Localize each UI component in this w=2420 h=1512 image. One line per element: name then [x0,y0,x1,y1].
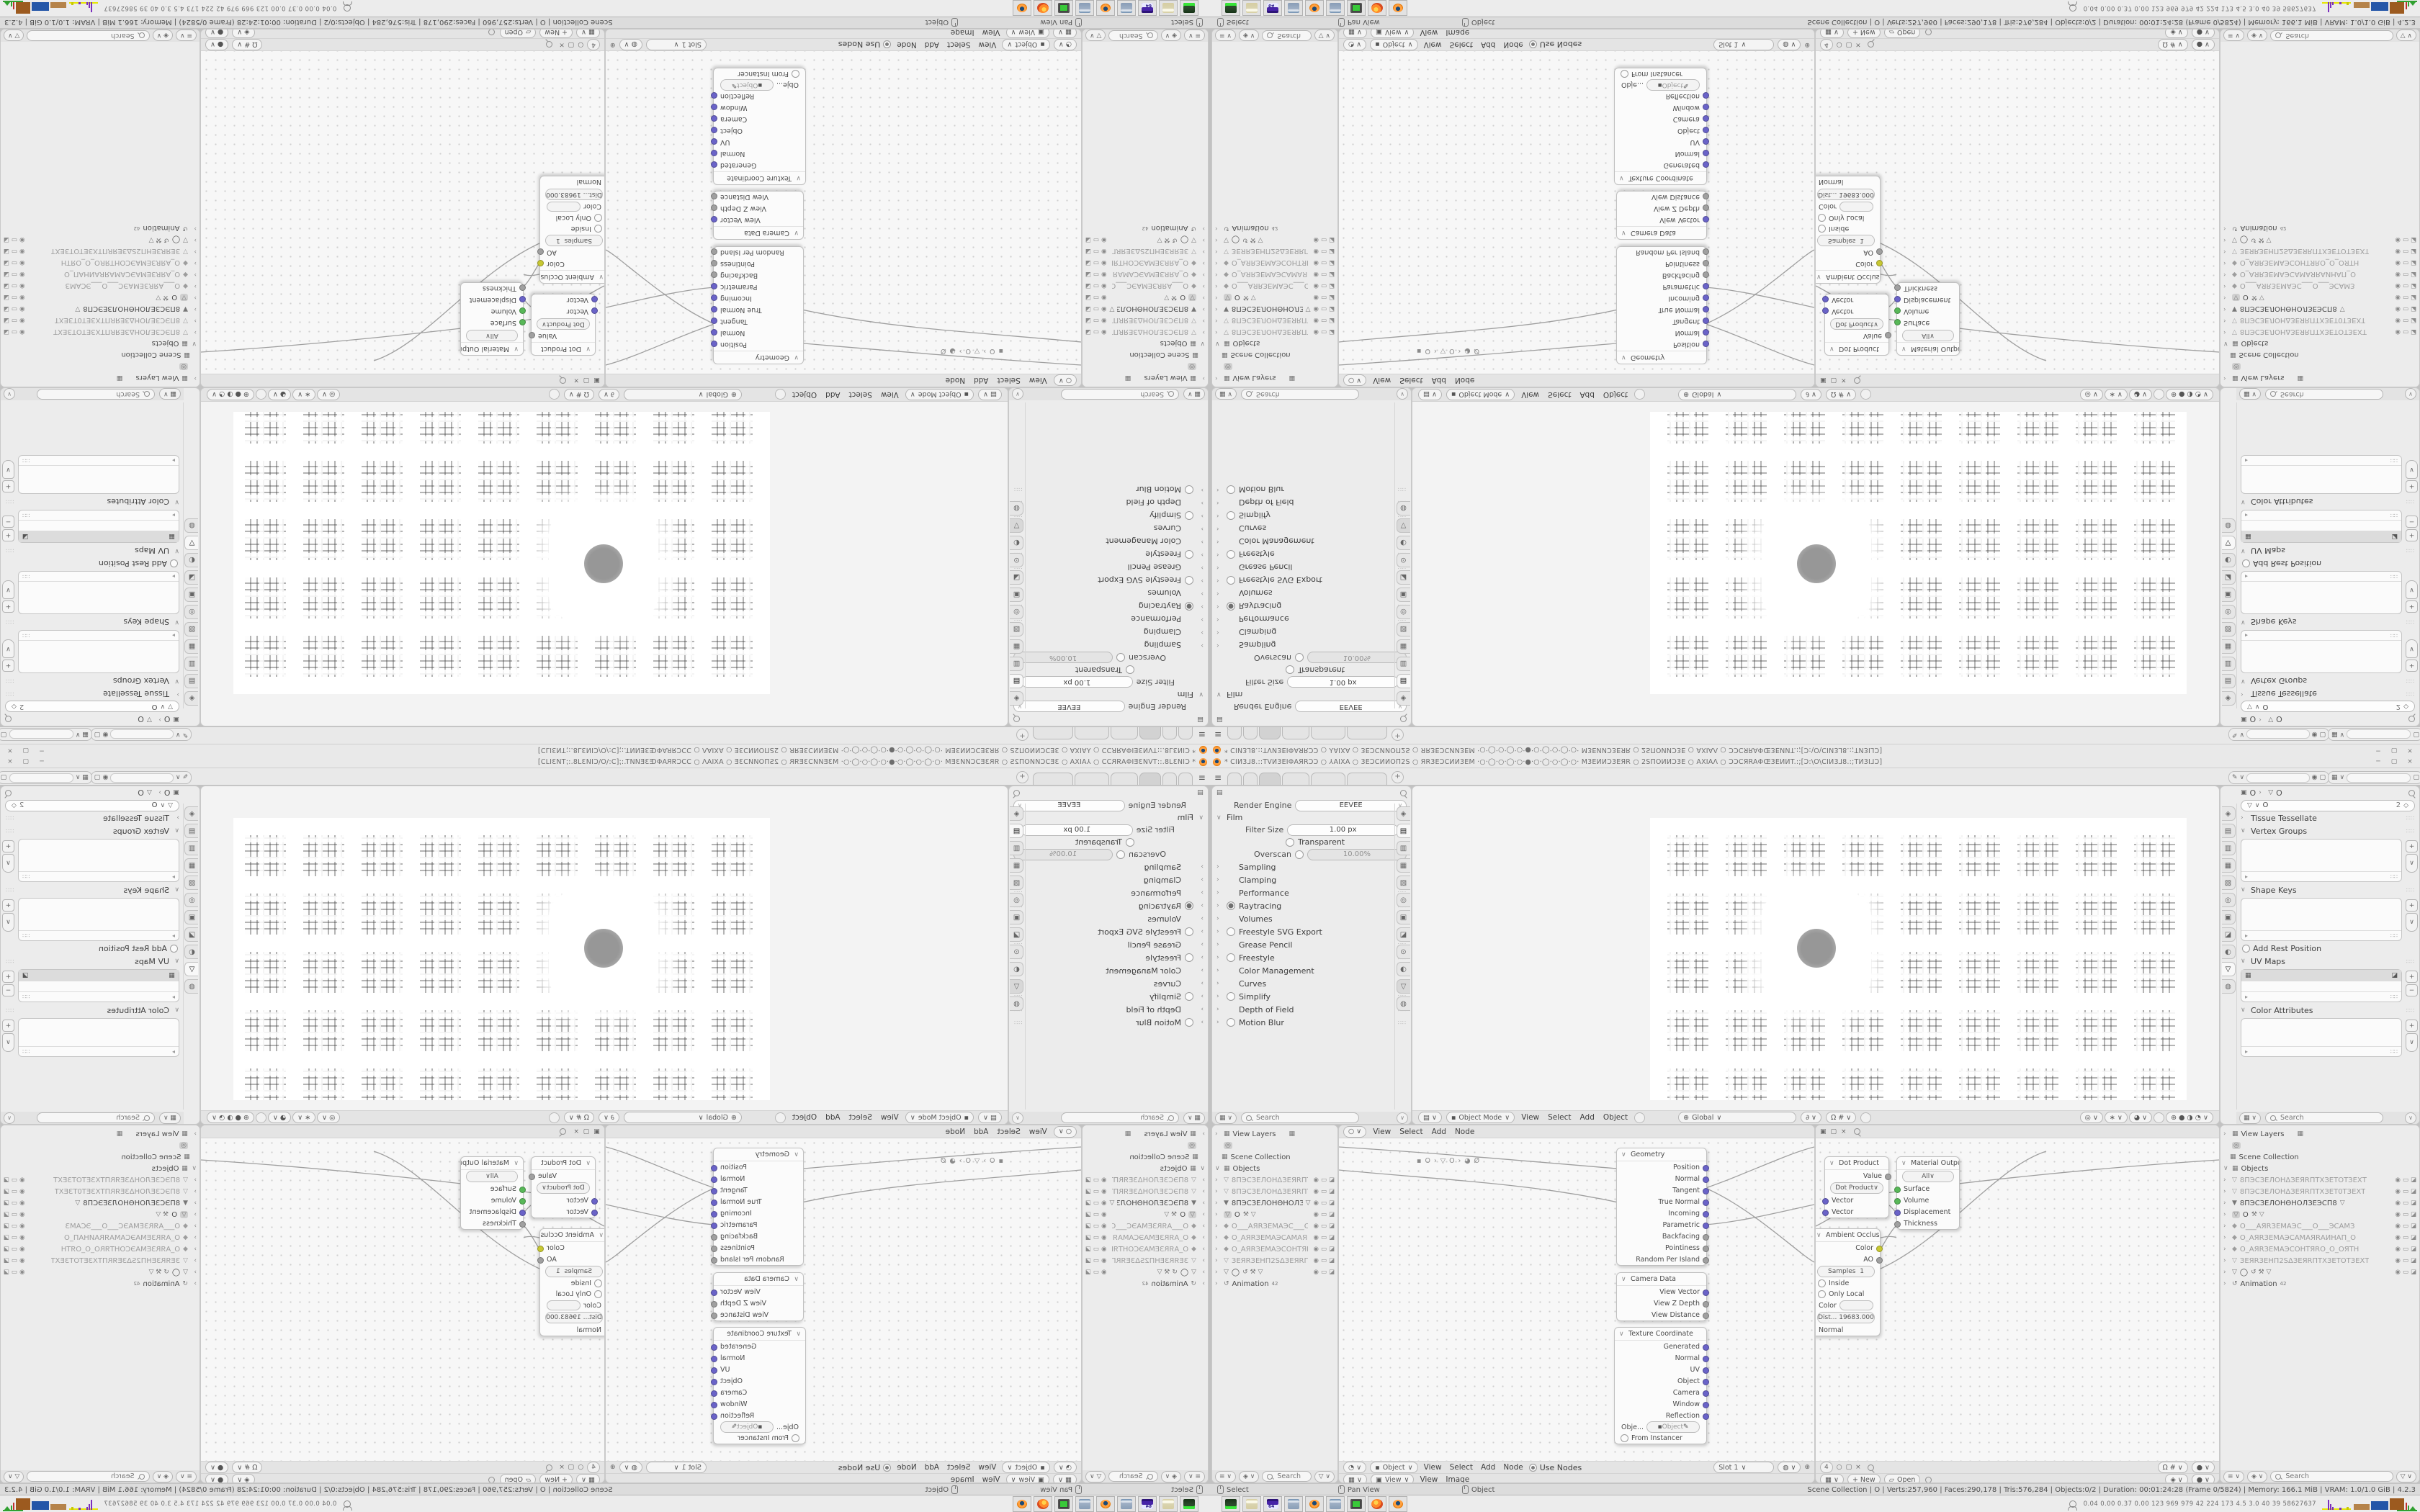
outliner-objects-row[interactable]: ∨▦ Objects [2220,1163,2419,1174]
shader-menu-node[interactable]: Node [1501,1463,1525,1472]
disable-render-icon[interactable]: ◪ [2411,1246,2416,1253]
outliner-filter-dropdown[interactable]: ▽ ∨ [1085,1471,1106,1482]
disable-render-icon[interactable]: ◪ [2411,248,2416,255]
taskbar-app-icon[interactable] [1034,0,1052,16]
pivot-point-button[interactable]: ∂ ∨ [1801,389,1821,400]
node-output-socket[interactable]: Window [1615,1398,1706,1410]
frame-counter[interactable]: 4 [587,1462,600,1473]
pin-icon[interactable] [1854,377,1860,384]
menu-hamburger-icon[interactable]: ≡ [1198,773,1206,783]
transparent-checkbox[interactable] [1126,838,1134,847]
tool-settings-button[interactable]: ◈ ∨ [232,29,254,38]
render-section-row[interactable]: › Freestyle ∷∷ [1212,951,1411,964]
workspace-tab-2[interactable] [1243,773,1258,785]
vertex-groups-panel[interactable]: ∨Vertex Groups∷∷ [1,824,184,837]
overscan-input[interactable]: 10.00% [1307,652,1407,664]
pin-icon[interactable] [488,30,495,36]
properties-search[interactable] [1061,1112,1179,1123]
node-output-socket[interactable]: Color [540,258,604,270]
disable-viewport-icon[interactable]: ▭ [2403,259,2408,266]
node-output-socket[interactable]: View Distance [1617,1309,1706,1320]
add-vertex-group-button[interactable]: + [2406,660,2418,672]
image-view-mode-select[interactable]: ▣ View ∨ [1371,1474,1415,1483]
disable-viewport-icon[interactable]: ▭ [2403,1234,2408,1241]
duplicate-icon[interactable]: ▢ [583,377,590,384]
vector-math-operation-select[interactable]: Dot Product∨ [1830,318,1883,330]
minimize-button[interactable]: ─ [37,747,46,754]
node-output-socket[interactable]: Tangent [714,1184,803,1196]
add-workspace-button[interactable]: + [1391,729,1404,741]
outliner-object-row[interactable]: › ◆ O_АЯRЗЕМАЭСОНТЯRО_О_ОЯТН ◉ ▭ ◪ [1212,1243,1337,1255]
hide-eye-icon[interactable]: ◉ [19,1211,24,1218]
node-geometry[interactable]: ∨Geometry Position Normal [713,1148,804,1266]
node-output-socket[interactable]: AO [540,1254,604,1265]
node-output-socket[interactable]: Parametric [714,1219,803,1230]
disable-render-icon[interactable]: ◪ [4,1257,9,1264]
hide-eye-icon[interactable]: ◉ [2396,282,2401,289]
disable-viewport-icon[interactable]: ▭ [1093,317,1099,324]
disable-render-icon[interactable]: ◪ [4,271,9,278]
hide-eye-icon[interactable]: ◉ [2396,305,2401,312]
properties-tab-data-icon[interactable]: ▽ [2222,536,2236,550]
node-output-socket[interactable]: Normal [714,148,805,160]
editor-type-button[interactable]: ▤ ∨ [1418,389,1442,400]
hide-eye-icon[interactable]: ◉ [1101,1234,1106,1241]
circle-icon[interactable]: ○ [578,41,583,48]
properties-tab-output-icon[interactable]: ▥ [185,841,199,855]
outliner-scene-collection-row[interactable]: ▦ Scene Collection [1212,349,1337,361]
disable-viewport-icon[interactable]: ▭ [2403,1223,2408,1230]
section-toggle[interactable] [1227,485,1235,494]
menu-hamburger-icon[interactable]: ≡ [1214,729,1222,739]
outliner-filter-dropdown[interactable]: ▽ ∨ [2396,30,2416,42]
outliner-object-row[interactable]: › ▽ O ⚒ ▽ ◉ ▭ ◪ [1083,292,1208,303]
node-output-socket[interactable]: Object [1615,1375,1706,1387]
node-input-socket[interactable]: Volume [461,306,523,318]
mode-options-button[interactable] [775,390,786,400]
taskbar-app-icon[interactable] [1096,1496,1115,1512]
disable-render-icon[interactable]: ◪ [1329,1176,1335,1184]
options-button[interactable]: ∨ [1012,1112,1023,1124]
options-button[interactable]: ∨ [1012,389,1023,400]
disable-viewport-icon[interactable]: ▭ [12,317,17,324]
vertex-group-specials-button[interactable]: ∨ [2,854,14,873]
fake-user-shield-icon[interactable]: ◇ [2403,703,2408,711]
disable-render-icon[interactable]: ◪ [1329,1234,1335,1241]
pin-icon[interactable] [1400,790,1407,796]
outliner-view-layers-row[interactable]: ›▦ View Layers ▦ [1,1128,200,1140]
properties-tab-scene-icon[interactable]: ▧ [1010,622,1024,636]
node-output-socket[interactable]: True Normal [1617,1196,1706,1207]
hide-eye-icon[interactable]: ◉ [1101,1269,1106,1276]
shape-key-specials-button[interactable]: ∨ [2,580,14,599]
pin-scene-icon[interactable]: ◉ [2312,774,2318,781]
material-browse-button[interactable]: ◍ ∨ [619,1462,642,1473]
node-output-socket[interactable]: True Normal [1617,305,1706,316]
render-section-row[interactable]: › Grease Pencil ∷∷ [1009,938,1208,951]
search-input[interactable] [1066,390,1165,399]
node-material-output[interactable]: ∨Material Output All∨ Surface Volume [460,282,524,356]
color-attributes-panel[interactable]: ∨Color Attributes∷∷ [1,1004,184,1017]
outliner-badge-row[interactable]: ◎ [1212,1140,1337,1151]
render-section-row[interactable]: › Sampling ∷∷ [1009,639,1208,652]
outliner-filter-button[interactable]: ◈ ∨ [1161,1471,1181,1482]
node-input-socket[interactable]: Normal [540,1324,604,1336]
render-section-row[interactable]: › Depth of Field ∷∷ [1009,1003,1208,1016]
disable-render-icon[interactable]: ◪ [2411,1176,2416,1184]
inside-checkbox[interactable] [594,225,602,233]
node-output-socket[interactable]: Color [540,1242,604,1254]
disable-viewport-icon[interactable]: ▭ [1093,294,1099,301]
node-input-socket[interactable]: Surface [461,1183,523,1194]
shader-menu-node[interactable]: Node [895,1463,918,1472]
outliner-object-row[interactable]: › ▼ 8ПЭСЗЕЛОНΘНОЛЗЕЭСП8 ▽ ◉ ▭ ◪ [2220,303,2419,315]
add-rest-position-checkbox[interactable] [2242,945,2250,953]
uv-maps-listbox[interactable]: ▦◪ ▸∷∷ [2241,969,2402,1002]
node-output-socket[interactable]: Random Per Island [1617,247,1706,258]
xray-toggle[interactable] [2154,1112,2164,1123]
properties-tab-material-icon[interactable]: ◍ [2222,979,2236,994]
outliner-object-row[interactable]: › ◆ O_АЯRЗЕМАЭСОНТЯRО_О_ОЯТН ◉ ▭ ◪ [2220,1243,2419,1255]
image-view-mode-select[interactable]: ▣ View ∨ [1006,1474,1050,1483]
mode-select[interactable]: ▪ Object Mode ∨ [1446,1112,1515,1123]
workspace-tab-1[interactable] [1178,773,1193,785]
editor-type-button[interactable]: ▦ ∨ [1053,29,1077,38]
transparent-checkbox[interactable] [1286,666,1294,675]
outliner-objects-row[interactable]: ∨▦ Objects [1,338,200,349]
render-engine-select[interactable]: EEVEE∨ [1013,701,1125,713]
outliner-object-row[interactable]: › ▽ 8ПЭСЗЕЛОНΔЗЕЯRПТХЗЕТОТЗЕХТ ◉ ▭ ◪ [1083,326,1208,338]
disable-render-icon[interactable]: ◪ [1085,1176,1091,1184]
properties-tab-data-icon[interactable]: ▽ [1010,979,1024,994]
uv-map-item-active[interactable]: ▦◪ [2241,970,2401,981]
node-output-socket[interactable]: Object [714,125,805,137]
tissue-tessellate-panel[interactable]: ›Tissue Tessellate∷∷ [2236,811,2419,824]
scene-selector[interactable]: ✎∨ ◉ ▢ [91,771,192,784]
add-uv-map-button[interactable]: + [2406,529,2418,541]
node-output-socket[interactable]: UV [714,1364,805,1375]
properties-tab-modifiers-icon[interactable]: ◪ [185,570,199,585]
properties-tab-object-icon[interactable]: ▣ [1397,588,1410,602]
circle-icon[interactable]: ○ [1837,1464,1842,1471]
outliner-animation-row[interactable]: ›↺ Animation 42 [2220,1278,2419,1290]
add-color-attribute-button[interactable]: + [2,1020,14,1032]
image-menu-image[interactable]: Image [949,1475,977,1483]
shader-menu-add[interactable]: Add [1430,1128,1448,1136]
disable-viewport-icon[interactable]: ▭ [12,1188,17,1195]
only-local-checkbox[interactable] [1818,214,1826,222]
properties-tab-world-icon[interactable]: ◎ [185,893,199,907]
outliner-object-row[interactable]: › ▽ 8ПЭСЗЕЛОНΔЗЕЯRПТХЗЕТ0ТЗЕХТ ◉ ▭ ◪ [2220,1186,2419,1197]
inside-checkbox[interactable] [1818,225,1826,233]
disable-viewport-icon[interactable]: ▭ [12,271,17,278]
node-input-socket[interactable]: Thickness [1897,283,1959,294]
node-input-socket[interactable]: Normal [1816,1324,1880,1336]
outliner-object-row[interactable]: › ◆ O_АЯRЗЕМАЭСАМАЯRАИНАП_О ◉ ▭ ◪ [2220,1232,2419,1243]
outliner-object-row[interactable]: › ◆ O_АЯRЗЕМАЭСОНТЯRО_О_ОЯТН ◉ ▭ ◪ [1,257,200,269]
unlink-icon[interactable]: × [573,1128,579,1135]
hide-eye-icon[interactable]: ◉ [2396,1200,2401,1207]
viewport-menu-view[interactable]: View [1519,1113,1541,1122]
outliner-object-row[interactable]: › ▽ 8ПЭСЗЕЛОНΔЗЕЯRПТХЗЕТОТЗЕХТ ◉ ▭ ◪ [2220,1174,2419,1186]
disable-viewport-icon[interactable]: ▭ [1321,1200,1327,1207]
node-output-socket[interactable]: View Vector [1617,215,1706,226]
shader-menu-select[interactable]: Select [1448,1463,1475,1472]
outliner-object-row[interactable]: › ◆ O_АЯRЗЕМАЭСОНТЯRО_О_ОЯТН ◉ ▭ ◪ [1083,1243,1208,1255]
node-output-socket[interactable]: Value [532,1170,595,1182]
render-section-row[interactable]: › Grease Pencil ∷∷ [1212,561,1411,574]
node-output-socket[interactable]: Value [1825,1170,1888,1182]
tissue-tessellate-panel[interactable]: ›Tissue Tessellate∷∷ [1,811,184,824]
node-output-socket[interactable]: Generated [1615,160,1706,171]
hide-eye-icon[interactable]: ◉ [1314,271,1319,278]
hide-eye-icon[interactable]: ◉ [1314,1200,1319,1207]
properties-tab-render-icon[interactable]: ▤ [1397,824,1410,838]
xray-toggle[interactable] [256,390,266,400]
taskbar-app-icon[interactable] [1075,1496,1094,1512]
shader-menu-select[interactable]: Select [1397,1128,1425,1136]
disable-render-icon[interactable]: ◪ [1329,282,1335,289]
color-attributes-panel[interactable]: ∨Color Attributes∷∷ [2236,495,2419,508]
close-button[interactable]: × [2406,758,2414,765]
viewport-3d[interactable]: ▤ ∨ ▪ Object Mode ∨ View Select Add Obje… [1412,387,2220,726]
disable-render-icon[interactable]: ◪ [1329,259,1335,266]
disable-viewport-icon[interactable]: ▭ [1321,294,1327,301]
workspace-tab-4[interactable] [1111,773,1138,785]
uv-map-item-active[interactable]: ▦◪ [19,970,179,981]
hide-eye-icon[interactable]: ◉ [1314,236,1319,243]
add-uv-map-button[interactable]: + [2,971,14,983]
outliner-object-row[interactable]: › ▽ 8ПЭСЗЕЛОНΔЗЕЯRПТХЗЕТОТЗЕХТ ◉ ▭ ◪ [2220,326,2419,338]
disable-viewport-icon[interactable]: ▭ [12,1223,17,1230]
mesh-name-field[interactable]: ▽∨ O 2 ◇ [2241,800,2415,811]
disable-viewport-icon[interactable]: ▭ [1093,1234,1099,1241]
render-section-row[interactable]: › Raytracing ∷∷ [1009,899,1208,912]
disable-viewport-icon[interactable]: ▭ [2403,1246,2408,1253]
image-menu-image[interactable]: Image [1443,1475,1471,1483]
overscan-checkbox[interactable] [1116,654,1125,662]
render-section-row[interactable]: › Curves ∷∷ [1009,977,1208,990]
disable-viewport-icon[interactable]: ▭ [1321,317,1327,324]
section-toggle[interactable] [1227,992,1235,1001]
search-input[interactable] [42,390,141,399]
disable-render-icon[interactable]: ◪ [1329,1269,1335,1276]
vertex-groups-panel[interactable]: ∨Vertex Groups∷∷ [2236,824,2419,837]
disable-render-icon[interactable]: ◪ [4,317,9,324]
disable-render-icon[interactable]: ◪ [2411,271,2416,278]
disable-viewport-icon[interactable]: ▭ [12,259,17,266]
image-menu-image[interactable]: Image [949,29,977,37]
node-output-socket[interactable]: AO [1816,1254,1880,1265]
pin-icon[interactable] [2408,716,2415,723]
disable-render-icon[interactable]: ◪ [2411,328,2416,336]
hide-eye-icon[interactable]: ◉ [1101,1211,1106,1218]
outliner-animation-row[interactable]: ›↺ Animation 42 [1083,222,1208,234]
disable-render-icon[interactable]: ◪ [2411,1269,2416,1276]
search-input[interactable] [2284,31,2388,40]
properties-tab-object-icon[interactable]: ▣ [2222,910,2236,924]
from-instancer-checkbox[interactable] [792,70,799,78]
node-texture-coordinate[interactable]: ∨Texture Coordinate Generated Normal [713,68,806,185]
hide-eye-icon[interactable]: ◉ [19,294,24,301]
properties-tab-modifiers-icon[interactable]: ◪ [1010,927,1024,942]
editor-type-button[interactable]: ○ ∨ [1054,1126,1077,1138]
mesh-name-field[interactable]: ▽∨ O 2 ◇ [5,701,179,713]
hide-eye-icon[interactable]: ◉ [19,259,24,266]
taskbar-app-icon[interactable] [1389,1496,1407,1512]
material-slot-select[interactable]: Slot 1 ∨ [1713,39,1774,50]
render-engine-select[interactable]: EEVEE∨ [1295,800,1407,811]
properties-tab-output-icon[interactable]: ▥ [185,657,199,671]
properties-tab-output-icon[interactable]: ▥ [1010,841,1024,855]
node-dot-product[interactable]: ∨Dot Product Value Dot Product∨ Vector [531,294,596,356]
node-camera-data[interactable]: ∨Camera Data View Vector View Z Depth [1616,1272,1707,1321]
node-material-output[interactable]: ∨Material Output All∨ Surface Volume [1896,282,1960,356]
overlays-button[interactable]: ● ∨ [2192,29,2215,38]
outliner-objects-row[interactable]: ∨▦ Objects [2220,338,2419,349]
pin-icon[interactable] [5,790,12,796]
vector-math-operation-select[interactable]: Dot Product∨ [537,318,590,330]
disable-viewport-icon[interactable]: ▭ [2403,236,2408,243]
shader-menu-select[interactable]: Select [1397,377,1425,385]
editor-type-button[interactable]: ○ ∨ [1343,1126,1366,1138]
viewport-menu-view[interactable]: View [879,1113,901,1122]
close-button[interactable]: × [6,747,14,754]
proportional-edit-button[interactable] [1860,390,1871,400]
overlays-button[interactable]: ● ∨ [205,1474,228,1483]
taskbar-app-icon[interactable] [1180,1496,1198,1512]
properties-tab-object-icon[interactable]: ▣ [1397,910,1410,924]
ao-distance-input[interactable]: Dist... 19683.000 [545,1312,603,1323]
disable-viewport-icon[interactable]: ▭ [1093,236,1099,243]
disable-render-icon[interactable]: ◪ [2411,236,2416,243]
proportional-edit-button[interactable] [549,390,560,400]
editor-type-button[interactable]: ▦ ∨ [1820,29,1844,38]
taskbar-app-icon[interactable] [1368,0,1386,16]
disable-viewport-icon[interactable]: ▭ [2403,328,2408,336]
editor-type-button[interactable]: ◔ ∨ [1343,39,1366,50]
unlink-icon[interactable]: × [1855,41,1861,48]
render-section-row[interactable]: › Freestyle SVG Export ∷∷ [1009,925,1208,938]
render-props-type-icon[interactable]: ▤ [1197,789,1204,796]
node-output-socket[interactable]: UV [714,137,805,148]
hide-eye-icon[interactable]: ◉ [1314,1176,1319,1184]
disable-render-icon[interactable]: ◪ [1085,236,1091,243]
taskbar-app-icon[interactable] [1284,1496,1303,1512]
use-nodes-row[interactable]: Use Nodes [1529,40,1582,50]
close-button[interactable]: × [2406,747,2414,754]
unlink-icon[interactable]: × [559,41,565,48]
disable-viewport-icon[interactable]: ▭ [1321,328,1327,336]
properties-tab-tool-icon[interactable]: ◈ [2222,806,2236,821]
color-attributes-listbox[interactable]: ▸∷∷ [18,1018,179,1057]
outliner-filter-button[interactable]: ◈ ∨ [153,1471,173,1482]
ao-distance-input[interactable]: Dist... 19683.000 [1817,1312,1875,1323]
node-input-socket[interactable]: Surface [1897,1183,1959,1194]
disable-render-icon[interactable]: ◪ [1085,1234,1091,1241]
ao-distance-input[interactable]: Dist... 19683.000 [545,189,603,200]
workspace-tab-5[interactable] [1311,727,1345,739]
editor-type-button[interactable]: ◔ ∨ [1054,39,1077,50]
breadcrumb-data[interactable]: O [138,715,144,724]
copy-viewlayer-icon[interactable]: ▢ [2413,731,2419,738]
render-section-row[interactable]: › Clamping ∷∷ [1009,873,1208,886]
frame-counter[interactable]: 4 [587,39,600,50]
node-output-socket[interactable]: Camera [1615,1387,1706,1398]
render-section-row[interactable]: › Volumes ∷∷ [1212,912,1411,925]
node-ambient-occlusion[interactable]: ∨Ambient Occlusion Color AO Samples 1 In… [1816,176,1881,284]
section-toggle[interactable] [1185,953,1193,962]
hide-eye-icon[interactable]: ◉ [1314,259,1319,266]
copy-viewlayer-icon[interactable]: ▢ [1,774,7,781]
properties-tab-scene-icon[interactable]: ▧ [2222,622,2236,636]
node-input-socket[interactable]: Normal [1816,176,1880,188]
render-section-row[interactable]: › Performance ∷∷ [1009,613,1208,626]
xray-toggle[interactable] [2154,390,2164,400]
outliner-badge-row[interactable]: ◎ [1212,361,1337,372]
node-input-socket[interactable]: Surface [1897,318,1959,329]
image-menu-view[interactable]: View [980,29,1003,37]
editor-type-button[interactable]: ◔ ∨ [1054,1462,1077,1473]
outliner-view-layers-row[interactable]: ›▦ View Layers ▦ [1,372,200,384]
workspace-tab-3-active[interactable] [1259,773,1281,785]
workspace-tab-2[interactable] [1243,727,1258,739]
shape-keys-panel[interactable]: ∨Shape Keys∷∷ [2236,616,2419,629]
outliner-object-row[interactable]: › ▽ O ⚒ ▽ ◉ ▭ ◪ [2220,292,2419,303]
pin-icon[interactable] [1925,1477,1932,1483]
node-dot-product[interactable]: ∨Dot Product Value Dot Product∨ Vector [1824,1156,1889,1218]
disable-render-icon[interactable]: ◪ [1085,1246,1091,1253]
texcoord-object-field[interactable]: ▪ Object ✎ [720,1421,774,1433]
outliner-view-layers-row[interactable]: ›▦ View Layers ▦ [2220,1128,2419,1140]
add-rest-position-checkbox[interactable] [2242,559,2250,567]
disable-viewport-icon[interactable]: ▭ [2403,1188,2408,1195]
open-image-button[interactable]: ▱ Open [1884,29,1921,38]
add-color-attribute-button[interactable]: + [2,480,14,492]
properties-tab-viewlayer-icon[interactable]: ▦ [1010,639,1024,654]
maximize-button[interactable]: ▢ [2390,747,2398,754]
disable-render-icon[interactable]: ◪ [2411,1257,2416,1264]
outliner-view-layers-row[interactable]: ›▦ View Layers ▦ [1083,372,1208,384]
node-output-socket[interactable]: Position [714,339,803,351]
section-toggle[interactable] [1185,1018,1193,1027]
outliner-object-row[interactable]: › ▽ ЗЕЯRЗЕНП2SΔЗЕЯRПТХЗЕТОТЗЕХТ ◉ ▭ ◪ [1083,1255,1208,1266]
options-button[interactable]: ∨ [2405,389,2416,400]
disable-viewport-icon[interactable]: ▭ [12,1269,17,1276]
node-output-socket[interactable]: Tangent [1617,316,1706,328]
properties-search[interactable] [37,1112,155,1123]
scene-selector[interactable]: ✎∨ ◉ ▢ [2228,771,2329,784]
outliner-object-row[interactable]: › ▽ ЗЕЯRЗЕНП2SΔЗЕЯRПТХЗЕТОТЗЕХТ ◉ ▭ ◪ [1212,1255,1337,1266]
disable-viewport-icon[interactable]: ▭ [12,1246,17,1253]
properties-tab-modifiers-icon[interactable]: ◪ [1010,570,1024,585]
outliner-object-row[interactable]: › ▽ ЗЕЯRЗЕНП2SΔЗЕЯRПТХЗЕТОТЗЕХТ ◉ ▭ ◪ [2220,1255,2419,1266]
node-output-socket[interactable]: Object [1615,125,1706,137]
properties-tab-material-icon[interactable]: ◍ [1397,996,1410,1011]
viewport-menu-add[interactable]: Add [823,390,842,399]
vertex-groups-panel[interactable]: ∨Vertex Groups∷∷ [2236,675,2419,688]
properties-search[interactable] [37,389,155,400]
disable-render-icon[interactable]: ◪ [1085,1257,1091,1264]
display-filter-button[interactable]: ▦ ∨ [159,1112,181,1124]
outliner-object-row[interactable]: › ◆ O_АЯRЗЕМАЭСОНТЯRО_О_ОЯТН ◉ ▭ ◪ [1,1243,200,1255]
outliner-object-row[interactable]: › ▽ 8ПЭСЗЕЛОНΔЗЕЯRПТХЗЕТОТЗЕХТ ◉ ▭ ◪ [1,1174,200,1186]
outliner-search[interactable] [2270,30,2393,41]
properties-tab-render-icon[interactable]: ▤ [185,674,199,688]
node-output-socket[interactable]: Normal [1617,328,1706,339]
outliner-object-row[interactable]: › ▽ ◯ ↺ ⚒ ▽ ◉ ▭ ◪ [1,1266,200,1278]
node-output-socket[interactable]: Pointiness [714,258,803,270]
